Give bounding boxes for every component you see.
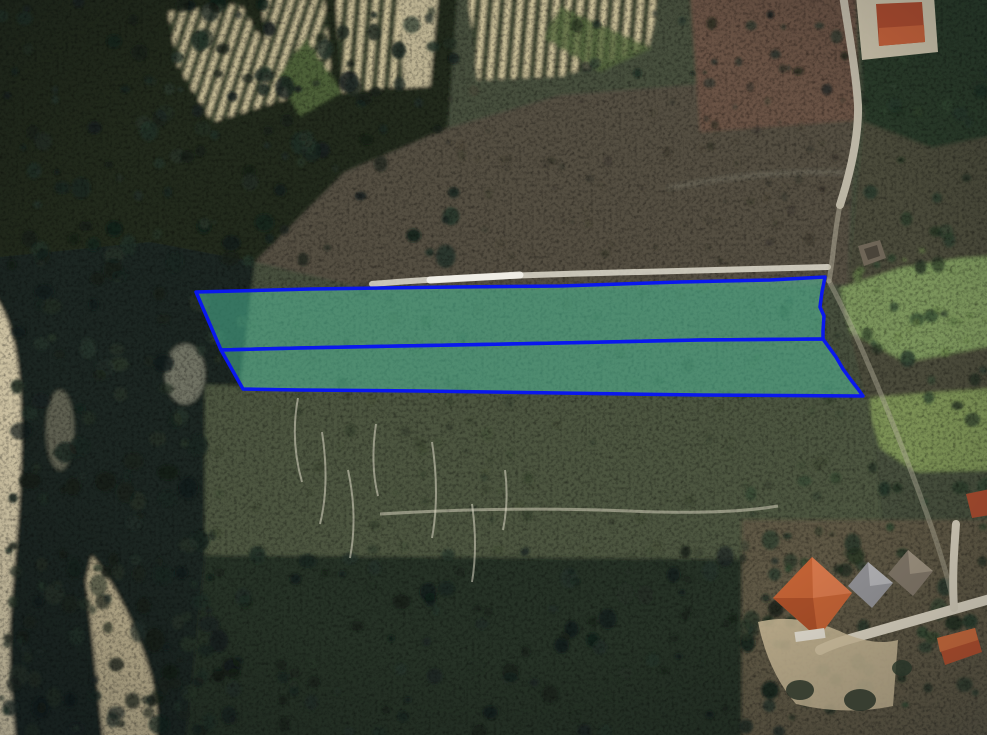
parcel-overlay bbox=[196, 277, 863, 396]
satellite-map-view[interactable] bbox=[0, 0, 987, 735]
map-image bbox=[0, 0, 987, 735]
parcel-polygon-lower[interactable] bbox=[221, 339, 863, 396]
